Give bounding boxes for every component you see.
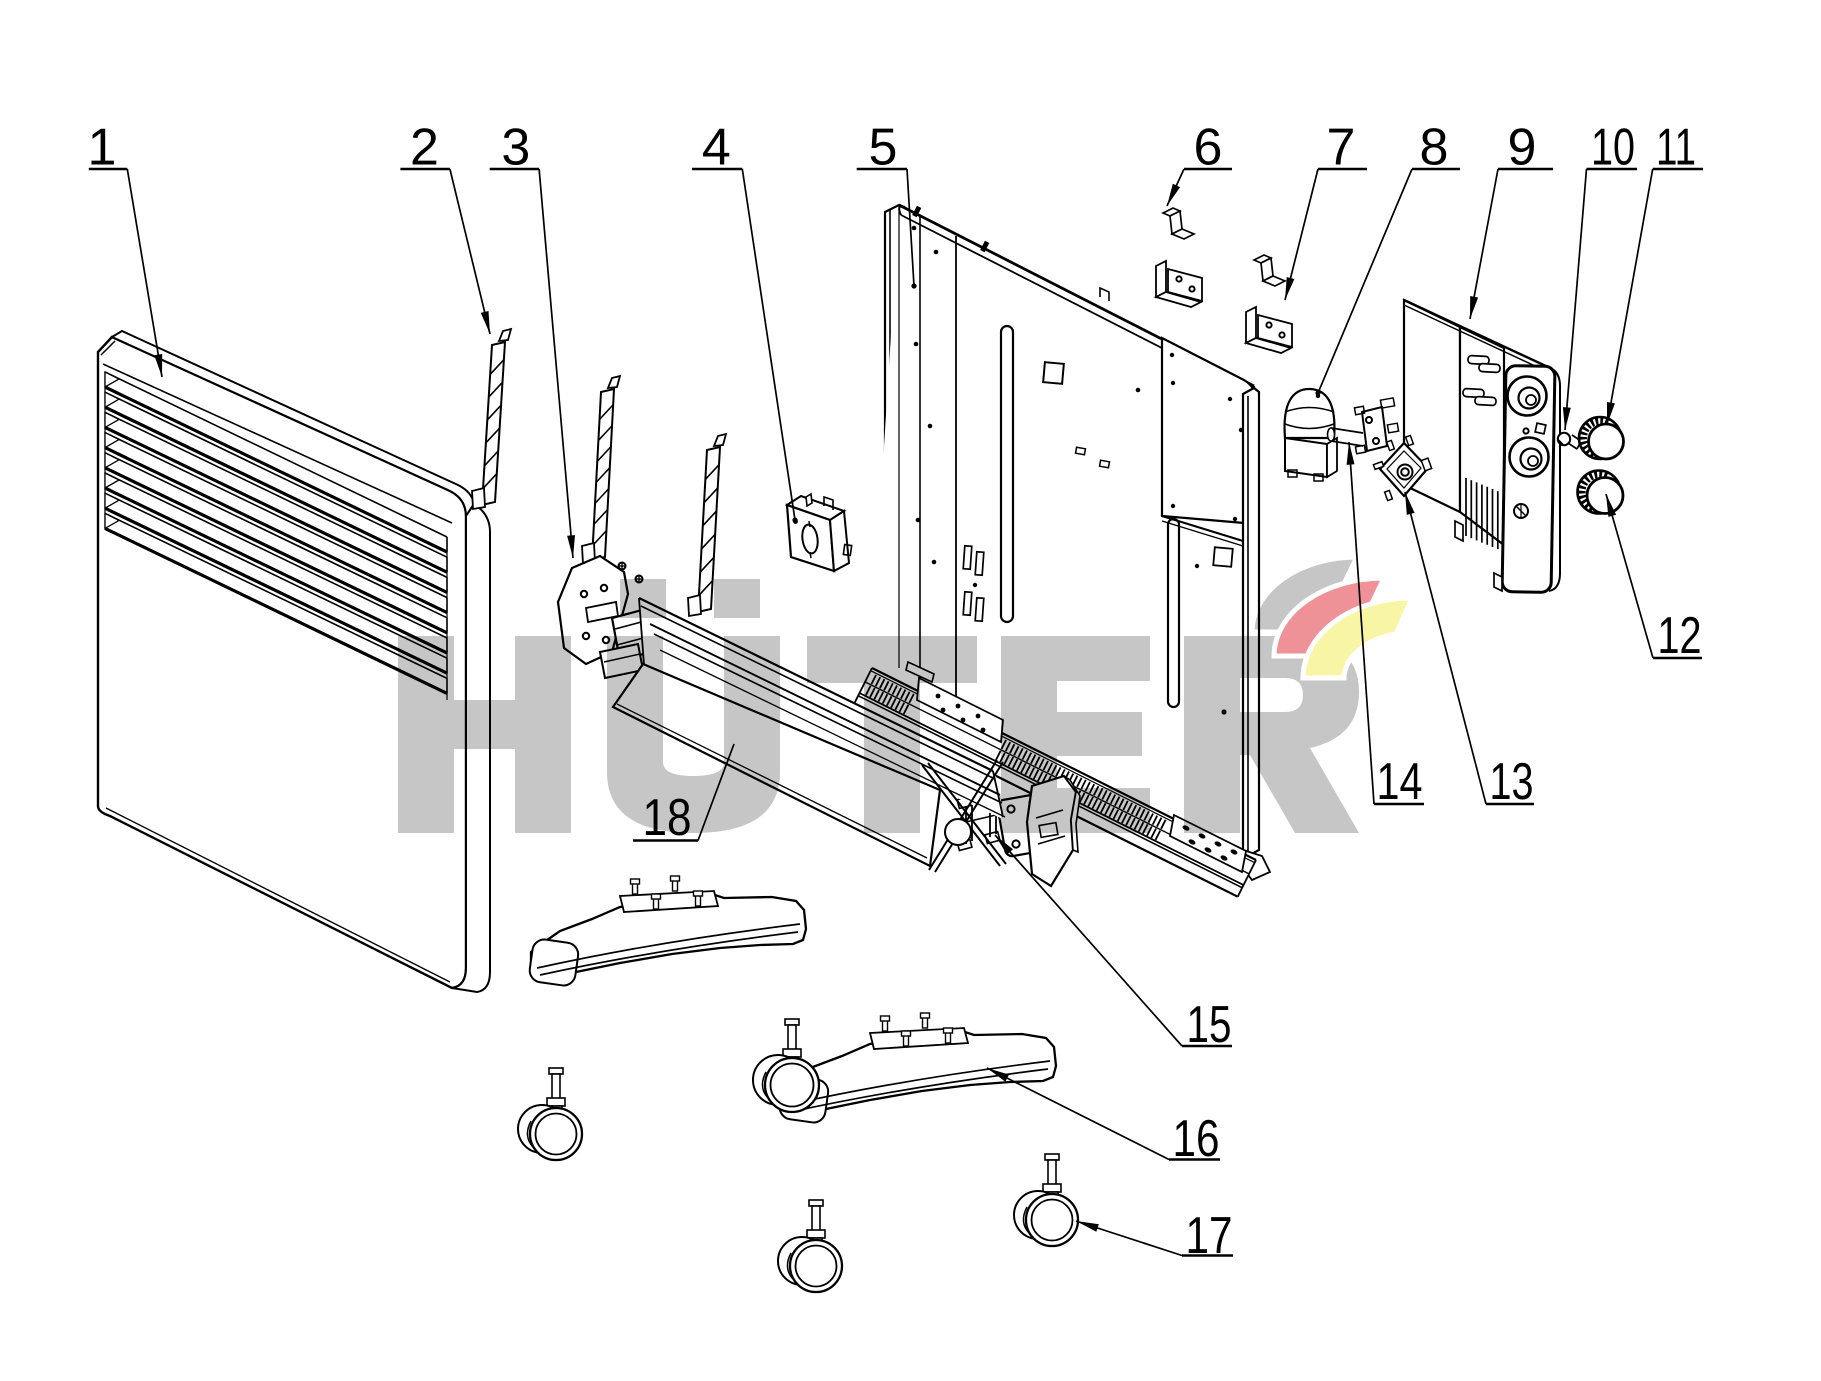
svg-text:14: 14 bbox=[1377, 753, 1423, 811]
svg-text:13: 13 bbox=[1490, 753, 1534, 811]
svg-text:12: 12 bbox=[1658, 607, 1702, 665]
svg-text:18: 18 bbox=[643, 789, 692, 847]
